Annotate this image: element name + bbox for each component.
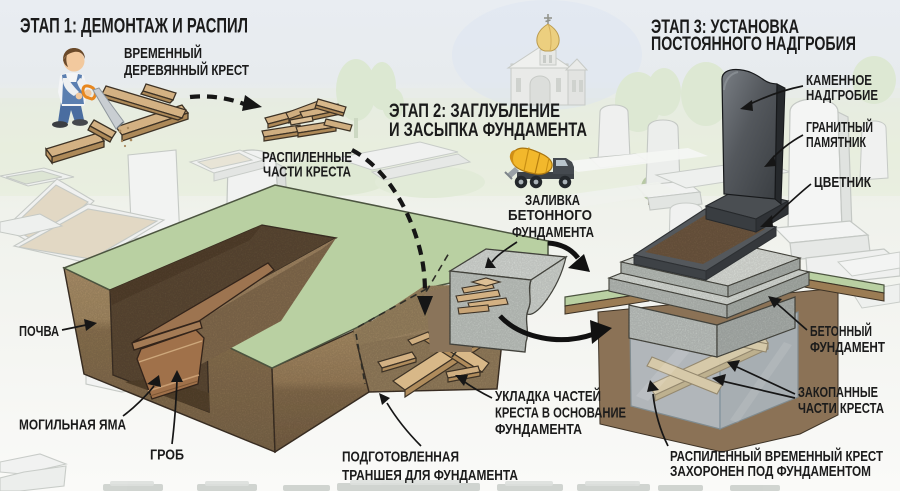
svg-text:ФУНДАМЕНТА: ФУНДАМЕНТА <box>512 224 594 241</box>
svg-text:И ЗАСЫПКА ФУНДАМЕНТА: И ЗАСЫПКА ФУНДАМЕНТА <box>389 120 587 141</box>
svg-text:ВРЕМЕННЫЙ: ВРЕМЕННЫЙ <box>124 44 202 62</box>
svg-text:ФУНДАМЕНТА: ФУНДАМЕНТА <box>495 421 582 438</box>
svg-text:ФУНДАМЕНТ: ФУНДАМЕНТ <box>810 339 885 356</box>
svg-text:ПОЧВА: ПОЧВА <box>19 323 59 340</box>
svg-text:ДЕРЕВЯННЫЙ КРЕСТ: ДЕРЕВЯННЫЙ КРЕСТ <box>124 61 249 79</box>
svg-text:ПОДГОТОВЛЕННАЯ: ПОДГОТОВЛЕННАЯ <box>342 449 459 466</box>
svg-text:ЧАСТИ КРЕСТА: ЧАСТИ КРЕСТА <box>798 400 884 417</box>
svg-text:УКЛАДКА ЧАСТЕЙ: УКЛАДКА ЧАСТЕЙ <box>495 387 601 405</box>
svg-text:ПАМЯТНИК: ПАМЯТНИК <box>806 134 867 151</box>
svg-text:МОГИЛЬНАЯ ЯМА: МОГИЛЬНАЯ ЯМА <box>19 417 126 434</box>
svg-text:ЦВЕТНИК: ЦВЕТНИК <box>814 174 872 191</box>
svg-text:ГРОБ: ГРОБ <box>150 447 184 464</box>
svg-text:БЕТОННОГО: БЕТОННОГО <box>508 207 592 224</box>
svg-text:ЭТАП 2: ЗАГЛУБЛЕНИЕ: ЭТАП 2: ЗАГЛУБЛЕНИЕ <box>389 101 560 122</box>
svg-text:ЧАСТИ КРЕСТА: ЧАСТИ КРЕСТА <box>263 164 351 181</box>
svg-text:НАДГРОБИЕ: НАДГРОБИЕ <box>806 87 878 104</box>
svg-text:ЭТАП 1: ДЕМОНТАЖ И РАСПИЛ: ЭТАП 1: ДЕМОНТАЖ И РАСПИЛ <box>20 15 248 38</box>
svg-text:ЗАКОПАННЫЕ: ЗАКОПАННЫЕ <box>798 384 878 401</box>
svg-text:ПОСТОЯННОГО НАДГРОБИЯ: ПОСТОЯННОГО НАДГРОБИЯ <box>651 33 856 55</box>
svg-text:КРЕСТА В ОСНОВАНИЕ: КРЕСТА В ОСНОВАНИЕ <box>495 405 626 422</box>
svg-text:БЕТОННЫЙ: БЕТОННЫЙ <box>810 322 872 340</box>
svg-text:ЗАХОРОНЕН ПОД ФУНДАМЕНТОМ: ЗАХОРОНЕН ПОД ФУНДАМЕНТОМ <box>670 463 871 480</box>
svg-text:ТРАНШЕЯ ДЛЯ ФУНДАМЕНТА: ТРАНШЕЯ ДЛЯ ФУНДАМЕНТА <box>342 467 518 484</box>
